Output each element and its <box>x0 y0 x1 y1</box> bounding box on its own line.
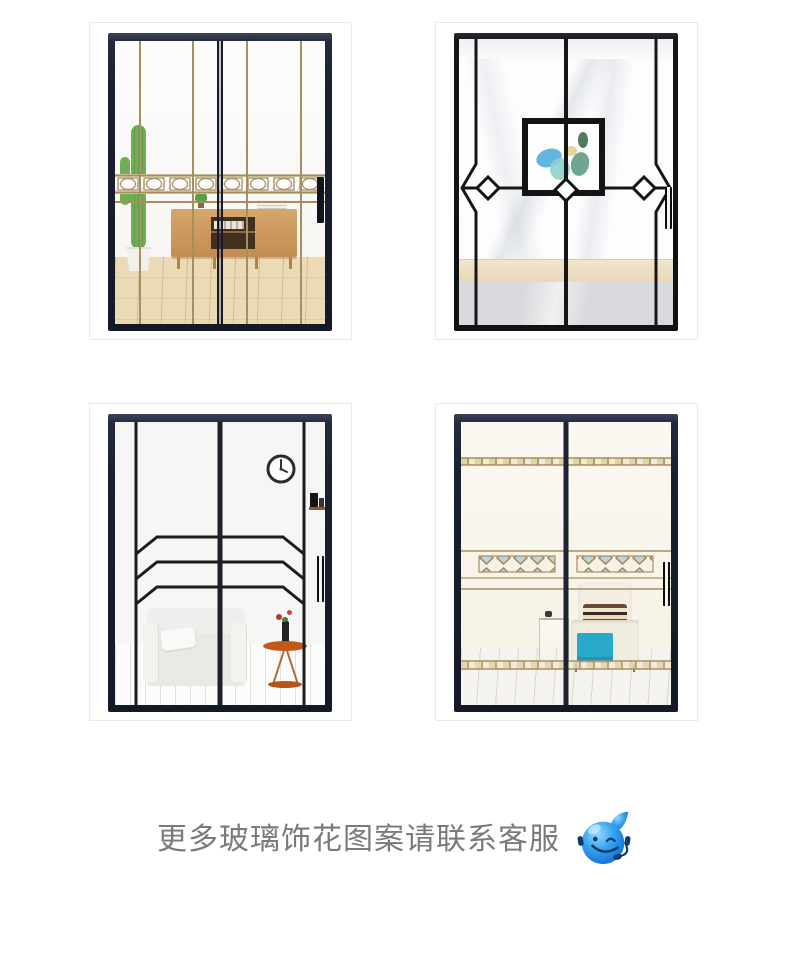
product-image-card-3[interactable] <box>89 403 352 721</box>
contact-note-text: 更多玻璃饰花图案请联系客服 <box>157 814 560 858</box>
door-center-stile <box>564 422 569 705</box>
sliding-door-black-diamond-center-art <box>454 33 678 331</box>
door-center-stile <box>217 41 223 324</box>
product-detail-page: 更多玻璃饰花图案请联系客服 <box>0 0 790 962</box>
door-center-stile <box>218 422 223 705</box>
sliding-door-gold-vertical-lines <box>108 33 332 331</box>
door-glass <box>459 39 673 325</box>
gold-vertical-line <box>192 41 194 324</box>
sliding-door-black-chevron-lines <box>108 414 332 712</box>
door-glass <box>115 41 325 324</box>
product-image-card-1[interactable] <box>89 22 352 340</box>
sliding-door-gold-diamond-bands <box>454 414 678 712</box>
door-handle <box>317 177 324 223</box>
gold-vertical-line <box>246 41 248 324</box>
decor-vase <box>177 197 186 209</box>
product-image-card-2[interactable] <box>435 22 698 340</box>
gold-vertical-line <box>139 41 141 324</box>
black-line-diamond-pattern <box>459 39 673 325</box>
door-glass <box>461 422 671 705</box>
door-handle <box>663 562 670 606</box>
wall-clock <box>268 456 294 482</box>
door-handle <box>317 556 324 602</box>
customer-service-mascot-icon[interactable] <box>575 810 633 868</box>
door-handle <box>665 187 672 229</box>
door-glass <box>115 422 325 705</box>
contact-customer-service-note: 更多玻璃饰花图案请联系客服 <box>0 804 790 868</box>
gold-vertical-line <box>300 41 302 324</box>
product-image-card-4[interactable] <box>435 403 698 721</box>
